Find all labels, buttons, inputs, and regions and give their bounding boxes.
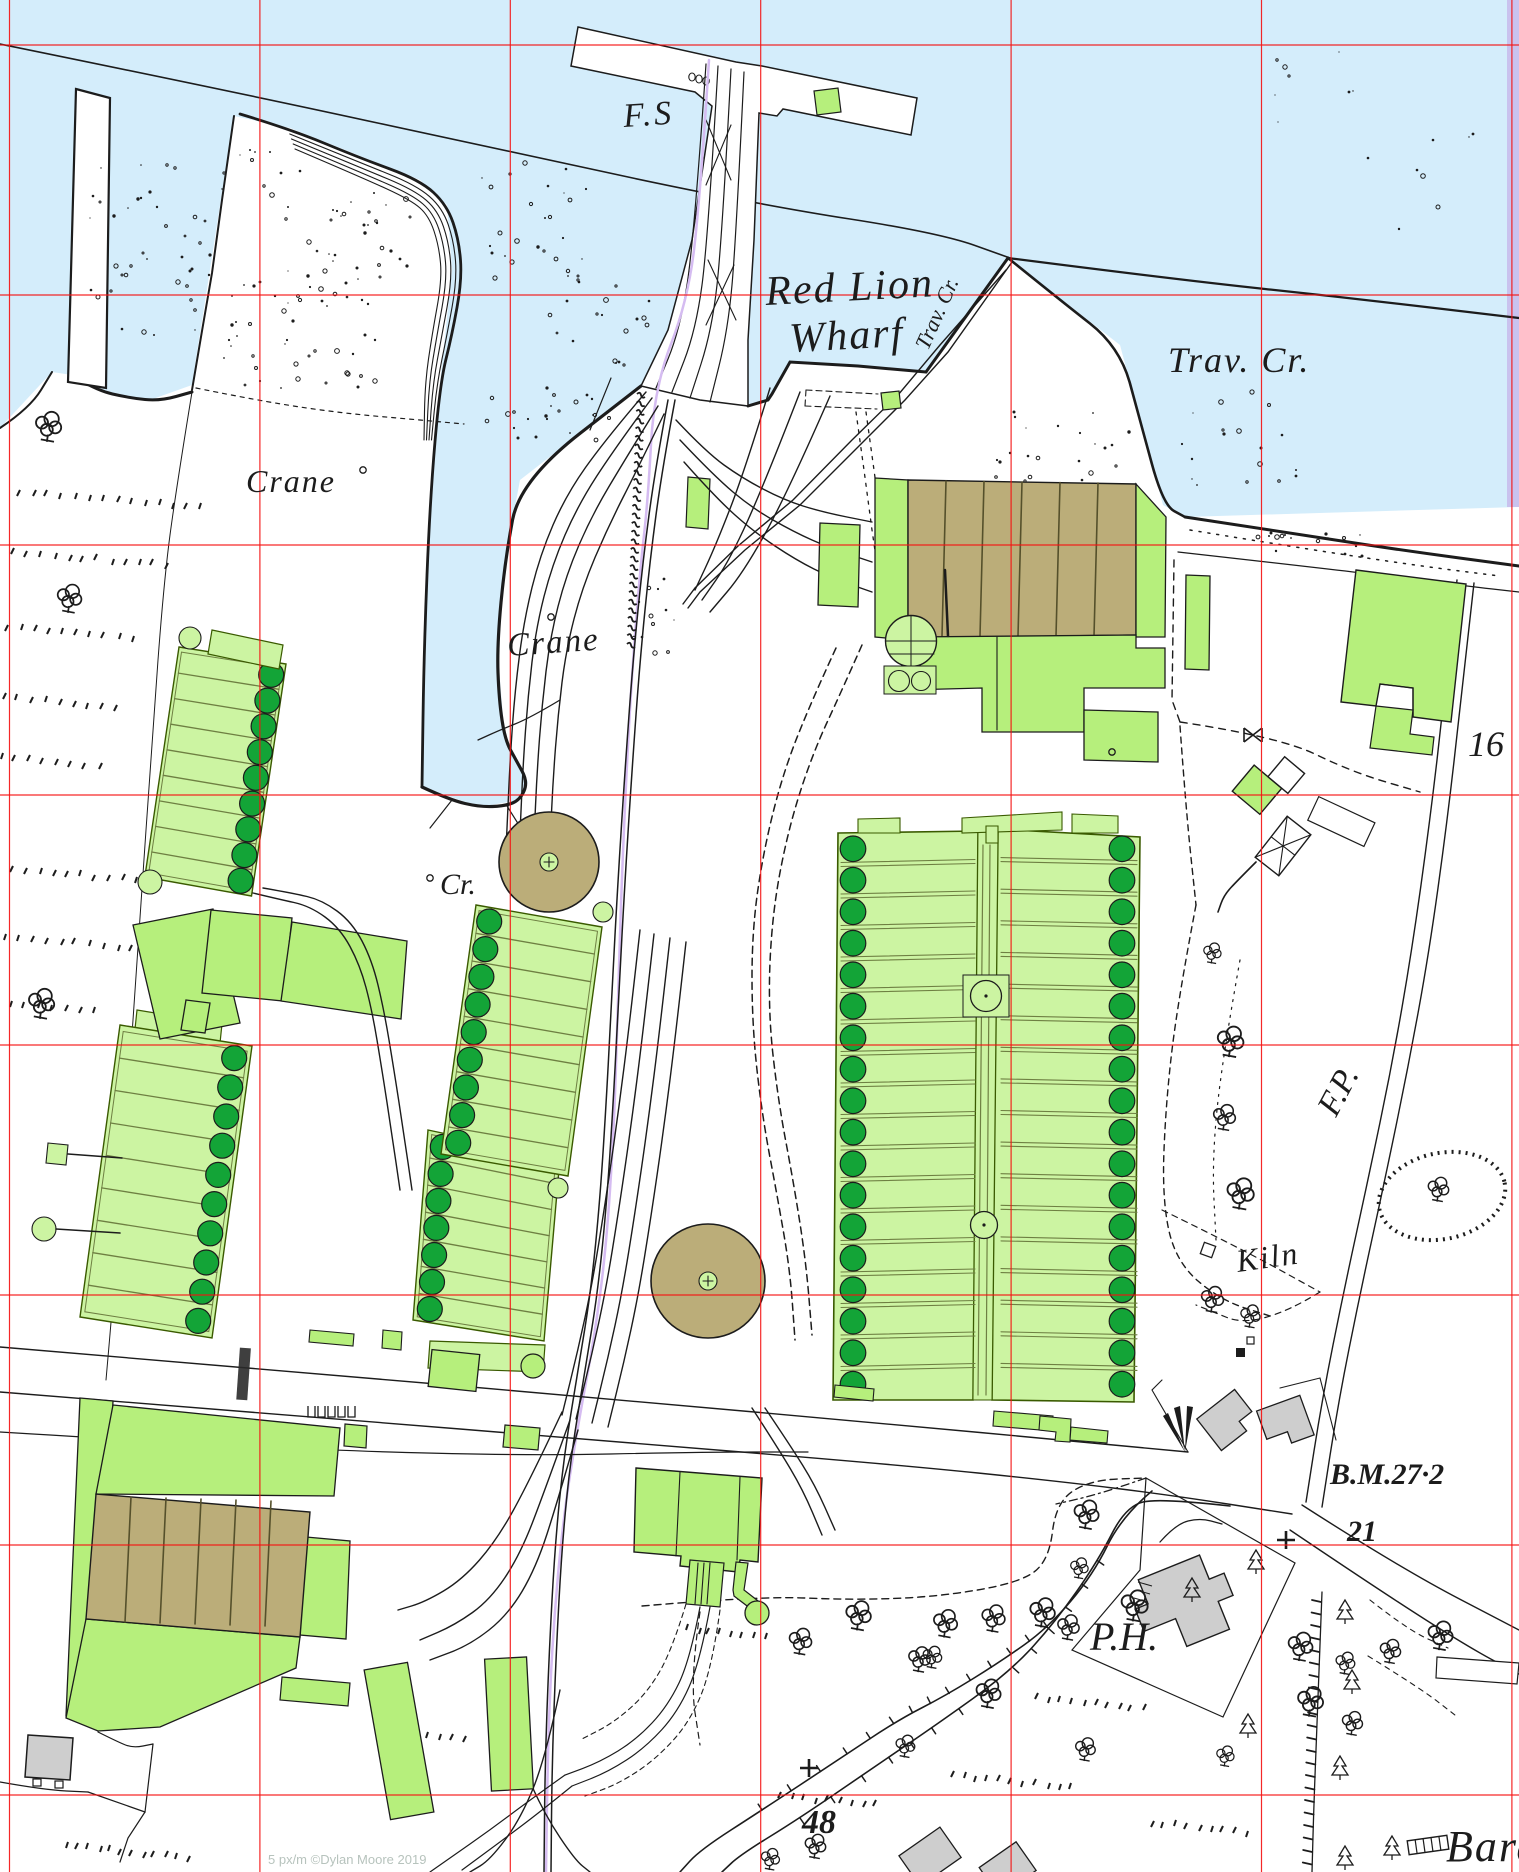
svg-text:Bard: Bard xyxy=(1446,1822,1519,1871)
svg-text:P.H.: P.H. xyxy=(1089,1614,1158,1659)
svg-text:Cr.: Cr. xyxy=(440,868,476,901)
svg-text:F.S: F.S xyxy=(621,95,675,136)
svg-text:B.M.27·2: B.M.27·2 xyxy=(1329,1458,1444,1491)
svg-text:Trav. Cr.: Trav. Cr. xyxy=(1168,340,1310,380)
svg-text:21: 21 xyxy=(1346,1515,1377,1548)
svg-text:Crane: Crane xyxy=(506,622,601,664)
svg-text:16: 16 xyxy=(1468,724,1504,764)
svg-text:5 px/m ©Dylan Moore 2019: 5 px/m ©Dylan Moore 2019 xyxy=(268,1852,426,1867)
svg-text:Red Lion: Red Lion xyxy=(763,260,935,315)
svg-text:Crane: Crane xyxy=(246,463,336,499)
svg-text:48: 48 xyxy=(801,1804,836,1841)
svg-text:Wharf: Wharf xyxy=(788,310,909,362)
